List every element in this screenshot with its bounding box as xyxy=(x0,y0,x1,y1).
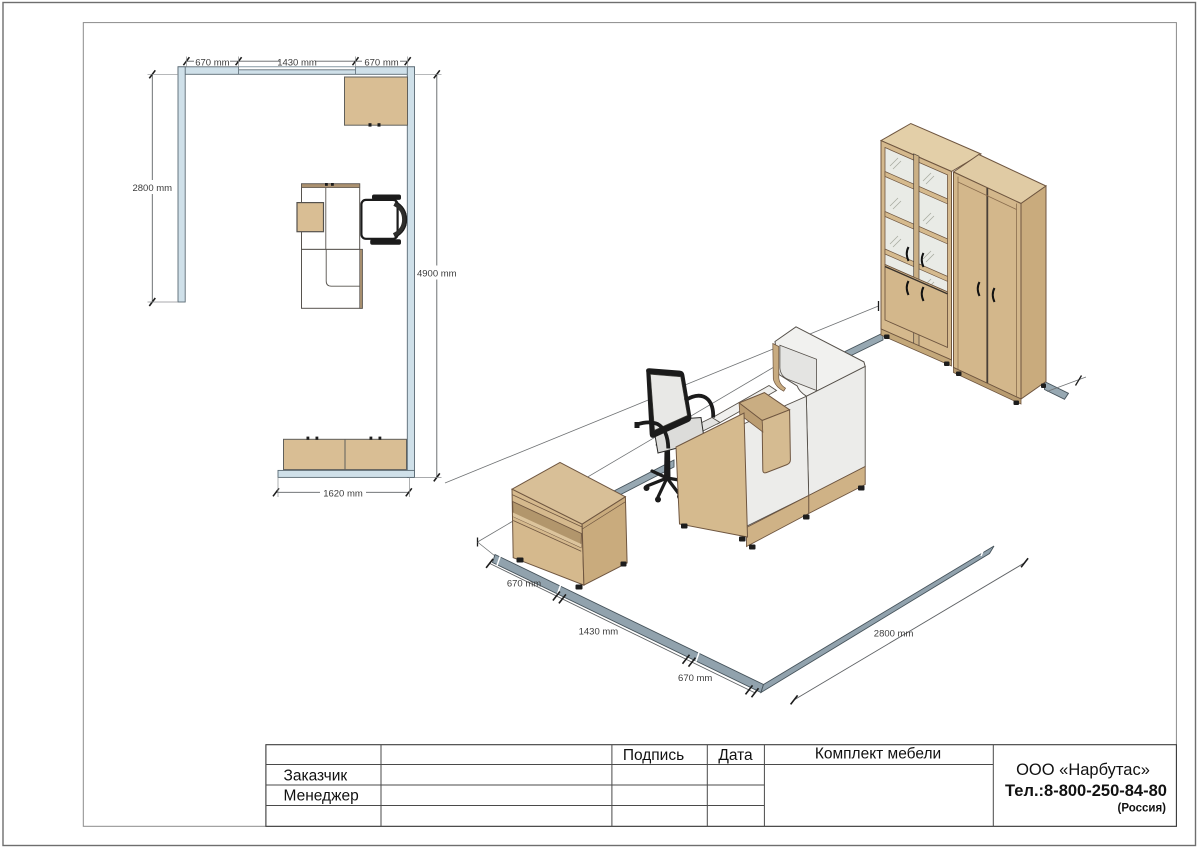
svg-text:Комплект мебели: Комплект мебели xyxy=(815,746,941,763)
svg-text:Дата: Дата xyxy=(718,747,753,764)
svg-text:670 mm: 670 mm xyxy=(678,673,712,684)
svg-text:Тел.:8-800-250-84-80: Тел.:8-800-250-84-80 xyxy=(1005,782,1167,800)
svg-text:2800 mm: 2800 mm xyxy=(132,183,172,194)
svg-text:1620 mm: 1620 mm xyxy=(323,488,363,499)
svg-text:2800 mm: 2800 mm xyxy=(874,629,914,640)
svg-text:1430 mm: 1430 mm xyxy=(579,627,619,638)
svg-text:(Россия): (Россия) xyxy=(1118,803,1167,815)
svg-text:4900 mm: 4900 mm xyxy=(417,269,457,280)
svg-text:670 mm: 670 mm xyxy=(195,58,229,69)
svg-text:Менеджер: Менеджер xyxy=(284,788,359,805)
svg-text:670 mm: 670 mm xyxy=(507,579,541,590)
svg-text:Подпись: Подпись xyxy=(623,747,684,764)
svg-text:670 mm: 670 mm xyxy=(364,58,398,69)
svg-text:ООО «Нарбутас»: ООО «Нарбутас» xyxy=(1016,761,1150,779)
svg-text:Заказчик: Заказчик xyxy=(284,767,348,784)
svg-text:1430 mm: 1430 mm xyxy=(277,58,317,69)
